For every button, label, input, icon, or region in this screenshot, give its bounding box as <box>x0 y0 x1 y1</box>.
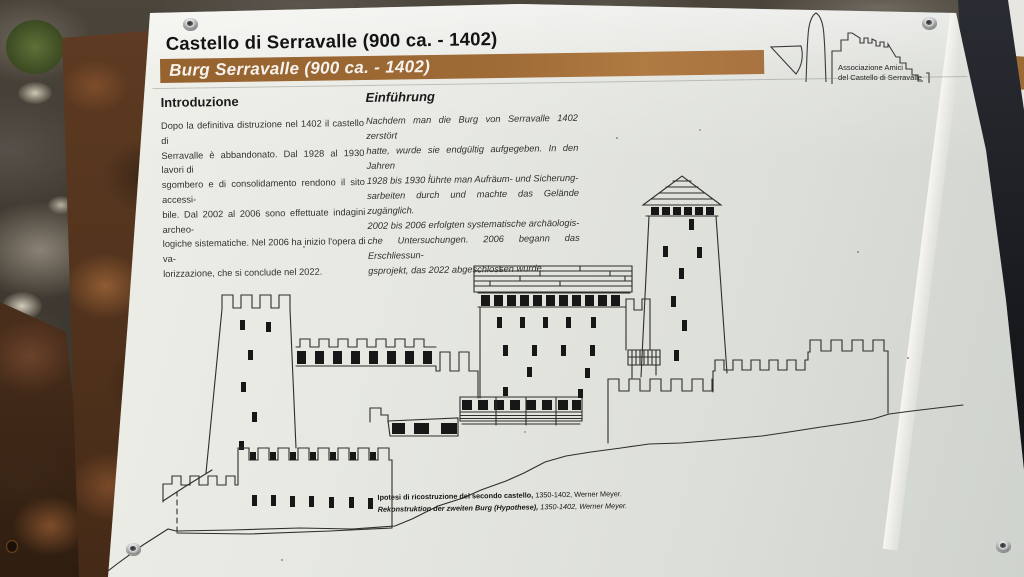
panel-title-italian: Castello di Serravalle (900 ca. - 1402) <box>166 28 498 55</box>
heading-einfuehrung: Einführung <box>365 89 435 105</box>
photo-scene: Associazione Amici del Castello di Serra… <box>0 0 1024 577</box>
heading-introduzione: Introduzione <box>161 94 239 110</box>
panel-screw-bottom-left <box>126 543 141 556</box>
bolt-hole <box>69 42 82 56</box>
info-panel: Associazione Amici del Castello di Serra… <box>0 0 1024 577</box>
paragraph-italian: Dopo la definitiva distruzione nel 1402 … <box>161 116 366 282</box>
panel-screw-bottom-right <box>996 540 1011 553</box>
bolt-hole <box>6 540 18 553</box>
plant-foliage <box>6 20 64 74</box>
drawing-caption: Ipotesi di ricostruzione del secondo cas… <box>377 488 627 515</box>
panel-content: Castello di Serravalle (900 ca. - 1402) … <box>0 0 1024 577</box>
paragraph-german: Nachdem man die Burg von Serravalle 1402… <box>366 111 580 279</box>
panel-title-german: Burg Serravalle (900 ca. - 1402) <box>169 55 430 83</box>
panel-screw-top-left <box>183 18 198 31</box>
lichen-patch <box>18 82 52 104</box>
title-band: Burg Serravalle (900 ca. - 1402) <box>160 50 764 83</box>
panel-screw-top-right <box>922 17 937 30</box>
